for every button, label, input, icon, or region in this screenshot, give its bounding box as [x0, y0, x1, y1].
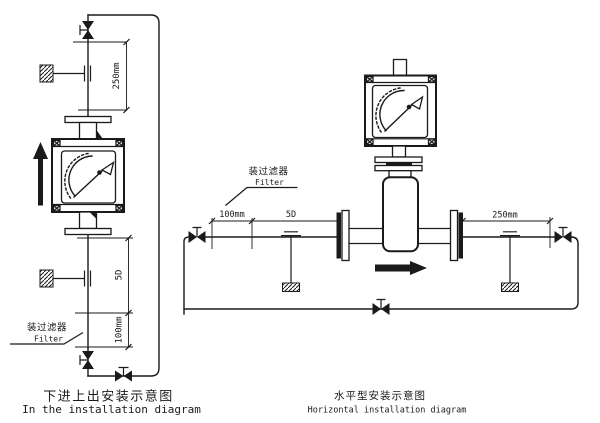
dim-label-5d: 5D — [286, 210, 296, 220]
filter-label-cn: 装过滤器 — [249, 166, 289, 178]
dim-label-100mm: 100mm — [219, 210, 245, 220]
dimension-250mm: 250mm — [460, 211, 554, 249]
vertical-installation-diagram: 250mm — [10, 15, 201, 416]
gate-valve-bypass-left — [115, 368, 132, 382]
dim-label-5d: 5D — [115, 270, 125, 281]
weld-mark-top — [97, 130, 103, 139]
gate-valve-bypass — [373, 300, 390, 316]
installation-diagram-sheet: 250mm — [0, 0, 600, 423]
dimension-250mm: 250mm — [73, 39, 130, 113]
wall-bracket-lower — [40, 270, 91, 287]
meter-flange-upper — [375, 157, 422, 163]
gate-valve-top — [80, 21, 94, 39]
dimension-100mm-5d: 100mm 5D — [209, 210, 337, 249]
flow-meter-horizontal — [365, 60, 436, 252]
floor-anchor-block — [283, 283, 300, 292]
filter-label-cn: 装过滤器 — [27, 322, 67, 334]
upper-neck — [80, 123, 97, 140]
filter-label-en: Filter — [34, 335, 63, 344]
outlet-flange — [451, 211, 464, 261]
pipe-support-left — [281, 232, 301, 292]
dim-label-100mm: 100mm — [115, 316, 125, 343]
inlet-flange — [337, 211, 350, 261]
wall-anchor-block — [40, 65, 53, 82]
gate-valve-bottom — [80, 351, 94, 369]
dim-label-250mm: 250mm — [492, 211, 518, 221]
upper-flange — [65, 117, 111, 123]
meter-flange-lower — [375, 166, 422, 171]
gate-valve-inlet — [189, 228, 206, 244]
top-stub — [394, 60, 407, 76]
left-caption-en: In the installation diagram — [22, 403, 201, 416]
wall-anchor-block — [40, 270, 53, 287]
flow-meter-vertical — [52, 139, 124, 212]
pipe-right-run-and-bypass — [184, 237, 578, 309]
pipe-support-right — [500, 232, 520, 292]
meter-stem — [393, 146, 406, 157]
wall-bracket-upper — [40, 65, 91, 82]
dimension-5d-100mm: 5D 100mm — [75, 235, 133, 350]
drawing-canvas: 250mm — [0, 0, 600, 423]
filter-leader-line — [226, 188, 298, 206]
filter-callout-left: 装过滤器 Filter — [10, 322, 83, 345]
right-caption-cn: 水平型安装示意图 — [334, 389, 426, 402]
flow-direction-up-arrow — [33, 142, 48, 206]
filter-callout-right: 装过滤器 Filter — [226, 166, 298, 206]
dim-label-250mm: 250mm — [112, 62, 122, 89]
inlet-stub-pipe — [349, 229, 383, 244]
pipe-left-riser — [184, 237, 189, 314]
outlet-stub-pipe — [418, 229, 451, 244]
flow-direction-right-arrow — [375, 261, 427, 275]
gate-valve-outlet — [555, 228, 572, 244]
meter-body-cylinder — [383, 177, 418, 251]
floor-anchor-block — [502, 283, 519, 292]
lower-flange — [65, 229, 111, 235]
filter-label-en: Filter — [255, 178, 284, 187]
right-caption-en: Horizontal installation diagram — [308, 406, 467, 416]
horizontal-installation-diagram: 100mm 5D 250mm — [184, 60, 578, 416]
